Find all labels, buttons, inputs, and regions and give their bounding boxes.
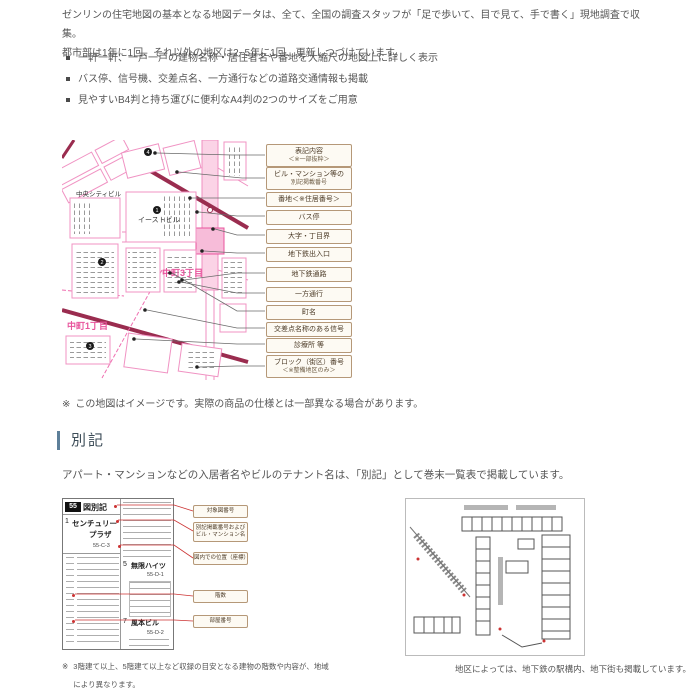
entry-number: 1 <box>65 518 69 525</box>
legend-label: 表記内容 <box>295 148 323 155</box>
feature-text: 見やすいB4判と持ち運びに便利なA4判の2つのサイズをご用意 <box>78 94 358 107</box>
circled-number-badge: 3 <box>88 344 91 350</box>
callout-target-dot <box>118 545 121 548</box>
illegible-tenant-rows <box>129 581 171 617</box>
intro-line-1: ゼンリンの住宅地図の基本となる地図データは、全て、全国の調査スタッフが「足で歩い… <box>62 6 647 44</box>
underground-map-art <box>406 499 584 655</box>
legend-label: バス停 <box>299 214 320 221</box>
legend-callout: ブロック（街区）番号＜※整備地区のみ＞ <box>266 355 352 378</box>
legend-callout: 地下鉄出入口 <box>266 247 352 262</box>
bekki-note: ※ 3階建て以上、5階建て以上など収録の目安となる建物の階数や内容が、地域 によ… <box>62 658 392 694</box>
legend-label: 地下鉄出入口 <box>288 251 330 258</box>
circled-number-badge: 1 <box>155 208 158 214</box>
legend-sublabel: 別記掲載番号 <box>268 179 350 187</box>
feature-text: 一軒一軒、一戸一戸の建物名称・居住者名や番地を大縮尺の地図上に詳しく表示 <box>78 52 438 65</box>
bekki-callout-label: ビル・マンション名 <box>196 532 246 538</box>
legend-label: 地下鉄通路 <box>292 271 327 278</box>
square-bullet-icon <box>66 56 70 60</box>
map-number-badge: 55 <box>65 502 81 512</box>
divider <box>63 553 120 554</box>
legend-label: 診療所 等 <box>294 342 324 349</box>
divider <box>120 499 121 649</box>
map-disclaimer-note: ※ この地図はイメージです。実際の商品の仕様とは一部異なる場合があります。 <box>62 396 542 414</box>
legend-callout: 表記内容＜※一部抜粋＞ <box>266 144 352 167</box>
illegible-text-rows <box>123 502 171 558</box>
bekki-callout: 図内での位置（座標） <box>193 552 248 565</box>
legend-label: ブロック（街区）番号 <box>274 359 344 366</box>
illegible-text-rows <box>77 557 119 647</box>
note-line-1: 3階建て以上、5階建て以上など収録の目安となる建物の階数や内容が、地域 <box>73 658 328 676</box>
bekki-callout-label: 図内での位置（座標） <box>194 555 249 561</box>
entry-position: 55-D-1 <box>147 572 164 578</box>
bus-stop-icon <box>208 208 213 213</box>
legend-callout: 交差点名称のある信号 <box>266 322 352 337</box>
feature-item: 一軒一軒、一戸一戸の建物名称・居住者名や番地を大縮尺の地図上に詳しく表示 <box>62 52 647 65</box>
bekki-list-table: 55 図別記 1 センチュリー プラザ 55-C-3 5 無限ハイツ 55-D-… <box>62 498 174 650</box>
district-label: 中町3丁目 <box>162 267 203 278</box>
bekki-callout: 対象図番号 <box>193 505 248 518</box>
callout-target-dot <box>116 520 119 523</box>
entry-name: 風本ビル <box>131 618 159 628</box>
legend-callout: ビル・マンション等の別記掲載番号 <box>266 167 352 190</box>
note-line-2: により異なります。 <box>73 676 328 694</box>
note-text: この地図はイメージです。実際の商品の仕様とは一部異なる場合があります。 <box>75 396 423 414</box>
entry-name: センチュリー <box>72 518 117 529</box>
entry-number: 7 <box>123 618 127 625</box>
bekki-callout-label: 別記掲載番号および <box>196 525 246 531</box>
legend-callout: 一方通行 <box>266 287 352 302</box>
circled-number-badge: 2 <box>100 260 103 266</box>
legend-callout: 大字・丁目界 <box>266 229 352 244</box>
square-bullet-icon <box>66 77 70 81</box>
bekki-callout: 階数 <box>193 590 248 603</box>
section-heading-bar <box>57 431 60 450</box>
bekki-callout-label: 部屋番号 <box>209 618 231 624</box>
entry-position: 55-C-3 <box>93 543 110 549</box>
entry-name: 無限ハイツ <box>131 561 166 571</box>
bekki-callout-label: 対象図番号 <box>207 508 235 514</box>
map-number-suffix: 図別記 <box>83 502 107 513</box>
legend-label: 番地＜※住居番号＞ <box>278 196 340 203</box>
square-bullet-icon <box>66 98 70 102</box>
legend-label: 大字・丁目界 <box>288 233 330 240</box>
legend-callout: 町名 <box>266 305 352 320</box>
legend-sublabel: ＜※整備地区のみ＞ <box>268 367 350 375</box>
note-text: 3階建て以上、5階建て以上など収録の目安となる建物の階数や内容が、地域 により異… <box>73 658 328 694</box>
legend-label: 交差点名称のある信号 <box>274 326 344 333</box>
bekki-callout: 部屋番号 <box>193 615 248 628</box>
illegible-text-rows <box>129 639 169 648</box>
underground-caption: 地区によっては、地下鉄の駅構内、地下街も掲載しています。 <box>455 663 695 675</box>
entry-number: 5 <box>123 561 127 568</box>
callout-target-dot <box>72 620 75 623</box>
legend-label: ビル・マンション等の <box>274 171 344 178</box>
note-marker: ※ <box>62 396 70 414</box>
feature-text: バス停、信号機、交差点名、一方通行などの道路交通情報も掲載 <box>78 73 368 86</box>
sample-map-figure: 中央シティビル イーストビル 中町3丁目 中町1丁目 1 2 3 4 <box>62 140 354 380</box>
legend-label: 一方通行 <box>295 291 323 298</box>
building-label: イーストビル <box>138 215 180 224</box>
legend-callout: 番地＜※住居番号＞ <box>266 192 352 207</box>
bekki-callout-label: 階数 <box>215 593 226 599</box>
callout-target-dot <box>114 505 117 508</box>
bekki-description: アパート・マンションなどの入居者名やビルのテナント名は、「別記」として巻末一覧表… <box>62 467 662 482</box>
district-label: 中町1丁目 <box>67 320 108 331</box>
divider <box>63 514 120 515</box>
legend-sublabel: ＜※一部抜粋＞ <box>268 156 350 164</box>
callout-target-dot <box>72 594 75 597</box>
legend-callout: 地下鉄通路 <box>266 267 352 282</box>
note-marker: ※ <box>62 658 68 694</box>
legend-callout: バス停 <box>266 210 352 225</box>
building-label: 中央シティビル <box>76 189 122 198</box>
circled-number-badge: 4 <box>146 150 149 156</box>
feature-item: 見やすいB4判と持ち運びに便利なA4判の2つのサイズをご用意 <box>62 94 647 107</box>
legend-callout: 診療所 等 <box>266 338 352 353</box>
feature-item: バス停、信号機、交差点名、一方通行などの道路交通情報も掲載 <box>62 73 647 86</box>
feature-list: 一軒一軒、一戸一戸の建物名称・居住者名や番地を大縮尺の地図上に詳しく表示 バス停… <box>62 52 647 115</box>
product-description-page: ゼンリンの住宅地図の基本となる地図データは、全て、全国の調査スタッフが「足で歩い… <box>0 0 700 700</box>
underground-map-figure <box>405 498 585 656</box>
entry-name: プラザ <box>89 529 112 540</box>
entry-position: 55-D-2 <box>147 630 164 636</box>
bekki-sample-figure: 55 図別記 1 センチュリー プラザ 55-C-3 5 無限ハイツ 55-D-… <box>62 498 248 656</box>
section-heading: 別記 <box>71 429 105 450</box>
illegible-number-column <box>66 557 74 647</box>
legend-label: 町名 <box>302 309 316 316</box>
bekki-callout: 別記掲載番号およびビル・マンション名 <box>193 522 248 542</box>
